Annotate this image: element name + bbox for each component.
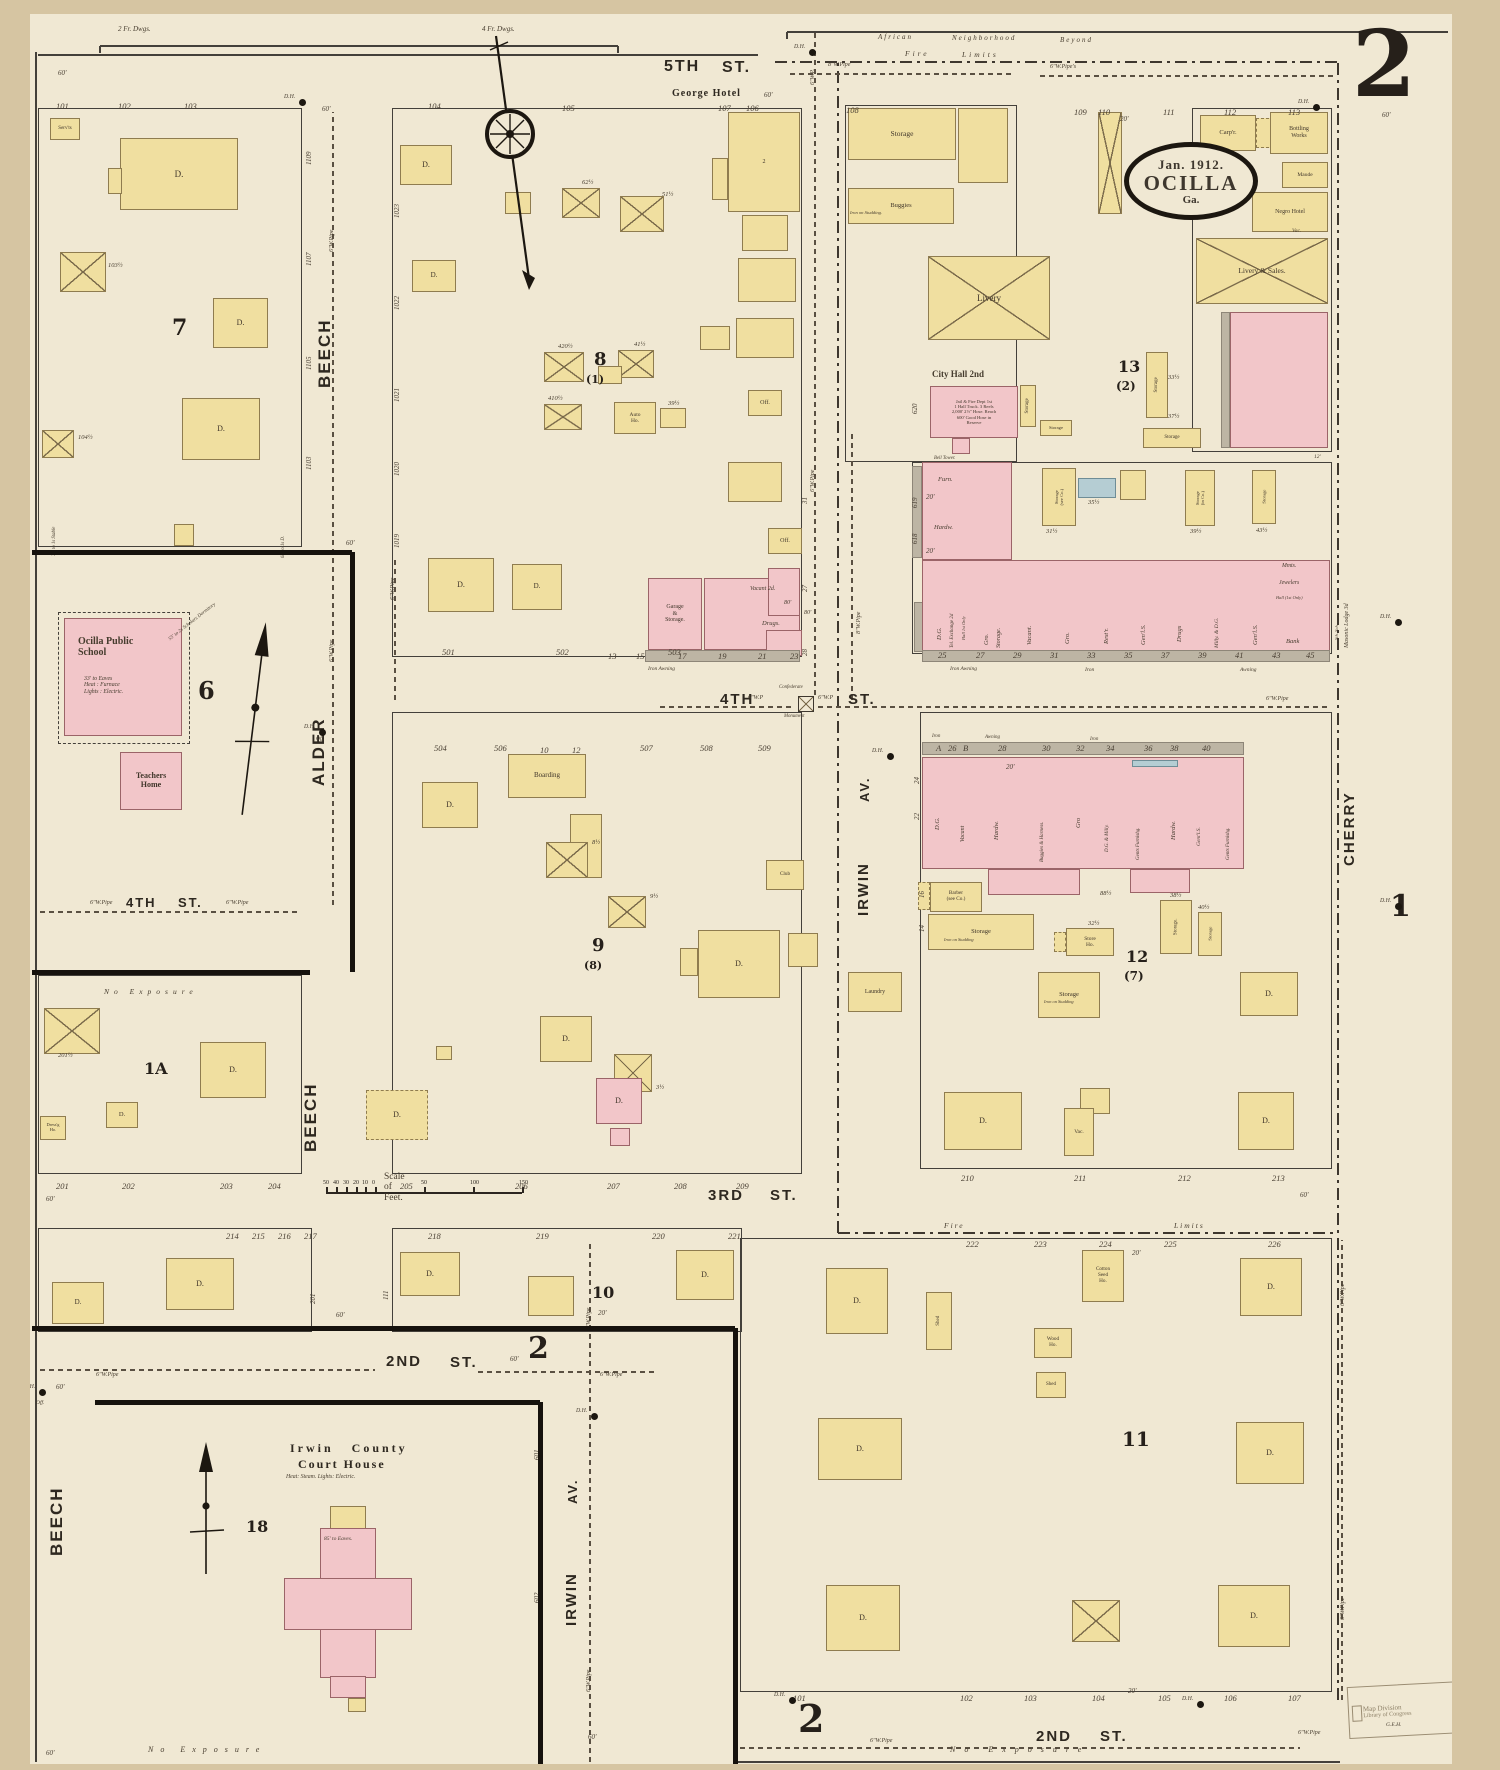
annotation: Fire	[905, 50, 930, 58]
building-label: Wood Ho.	[1047, 1337, 1059, 1349]
scale-bar-part	[365, 1187, 367, 1193]
annotation-vertical: D.G. & Milly.	[1105, 824, 1111, 852]
dimension-label: 60'	[588, 1734, 597, 1742]
lot-number: 225	[1164, 1240, 1177, 1249]
lot-number: 220	[652, 1232, 665, 1241]
lot-number: 221	[728, 1232, 741, 1241]
library-stamp: Map Division Library of Congress	[1347, 1681, 1466, 1739]
block-number: 2	[1352, 14, 1416, 115]
lot-number-vertical: 1020	[394, 462, 402, 476]
street-label: ST.	[848, 692, 876, 709]
teachers-home: Teachers Home	[120, 752, 182, 810]
building-label: Jail & Fire Dept 1st 1 Hall Truck. 3 Ree…	[952, 399, 996, 425]
building-label: D.	[853, 1297, 861, 1306]
building	[660, 408, 686, 428]
scale-tick-label: 50	[421, 1180, 427, 1186]
building	[330, 1676, 366, 1698]
lot-number: 211	[1074, 1174, 1086, 1183]
block-number: 12	[1126, 948, 1148, 966]
building	[680, 948, 698, 976]
block-number: 13	[1118, 358, 1140, 376]
lot-number: 201	[56, 1182, 69, 1191]
annotation-vertical: Drugs	[1176, 626, 1183, 642]
annotation: Off.	[36, 1400, 44, 1406]
dimension-label: 60'	[58, 70, 67, 78]
building-d: D.	[166, 1258, 234, 1310]
building-label: D.	[1250, 1612, 1258, 1621]
annotation: 6"W.Pipe's	[1050, 64, 1076, 71]
building	[544, 352, 584, 382]
lot-number: 214	[226, 1232, 239, 1241]
water-pipe-line	[1040, 75, 1335, 77]
street-label: BEECH	[48, 1486, 67, 1556]
building-auto: Auto Ho.	[614, 402, 656, 434]
street-label: CHERRY	[1342, 791, 1359, 866]
building-label: Livery & Sales.	[1238, 267, 1285, 275]
lot-number: B	[963, 744, 968, 753]
annotation: G.E.H.	[1386, 1722, 1401, 1728]
water-pipe-line	[851, 430, 853, 700]
scale-tick-label: 20	[353, 1180, 359, 1186]
annotation: 8"W.Pipe	[828, 62, 850, 69]
lot-number-vertical: 1109	[306, 152, 314, 165]
building-label: D.	[431, 272, 438, 280]
lot-number: 33	[1087, 651, 1096, 660]
dimension-label: 20'	[1120, 116, 1129, 124]
building-vac: Vac.	[1064, 1108, 1094, 1156]
lot-number: 31	[1050, 651, 1059, 660]
sheet-cut-line	[32, 970, 310, 975]
building	[1078, 478, 1116, 498]
building	[546, 842, 588, 878]
title-state: Ga.	[1183, 194, 1200, 206]
building	[1130, 869, 1190, 893]
fire-limits-line	[775, 61, 1338, 63]
annotation: 6"W.Pipe	[600, 1372, 622, 1379]
annotation-vertical: Gents Furnishg.	[1136, 828, 1142, 861]
annotation: 8½	[592, 839, 600, 846]
annotation: 420½	[558, 343, 573, 350]
lot-number: 13	[608, 652, 617, 661]
building-label: D.	[562, 1035, 570, 1044]
building-label: Serv'ts	[58, 126, 71, 132]
annotation-vertical: D.G.	[936, 627, 943, 640]
block-number: (1)	[586, 374, 604, 386]
annotation-vertical: Gen'l.S.	[1252, 624, 1259, 645]
annotation: Furn.	[938, 476, 953, 483]
annotation: Iron	[1085, 667, 1094, 673]
building	[742, 215, 788, 251]
dh-dot-icon	[887, 753, 894, 760]
dh-dot-icon	[591, 1413, 598, 1420]
building-label: D.	[1267, 1283, 1275, 1292]
annotation: 37½	[1168, 413, 1179, 420]
lot-number: 27	[976, 651, 985, 660]
building-maude: Maude	[1282, 162, 1328, 188]
annotation: Hardw.	[934, 524, 953, 531]
lot-number: 10	[540, 746, 549, 755]
building-label: Off.	[760, 400, 770, 407]
building-d: D.	[826, 1585, 900, 1651]
building-label: Vac.	[1074, 1129, 1084, 1135]
street-label: 2ND	[386, 1354, 422, 1371]
annotation: Awning	[985, 735, 1000, 741]
dh-dot-icon	[789, 1697, 796, 1704]
annotation: 39½	[668, 400, 679, 407]
building-storage: Storage	[1040, 420, 1072, 436]
building	[436, 1046, 452, 1060]
annotation: 103½	[108, 262, 123, 269]
building-shed: Shed	[926, 1292, 952, 1350]
annotation: Ocilla Public School	[78, 636, 133, 658]
dimension-label: 60'	[510, 1356, 519, 1364]
building-label: Bottling Works	[1289, 126, 1309, 139]
building-label: Dress'g Ho.	[47, 1123, 60, 1133]
annotation: 43½	[1256, 527, 1267, 534]
building	[1230, 312, 1328, 448]
lot-number: 226	[1268, 1240, 1281, 1249]
building-label: Livery	[977, 293, 1001, 303]
city-hall-jail-fire-dept: Jail & Fire Dept 1st 1 Hall Truck. 3 Ree…	[930, 386, 1018, 438]
lot-number: 25	[938, 651, 947, 660]
annotation: 104½	[78, 434, 93, 441]
street-label: George Hotel	[672, 88, 741, 99]
building	[42, 430, 74, 458]
street-label: 4TH	[126, 896, 157, 910]
lot-number: 216	[278, 1232, 291, 1241]
lot-number: 223	[1034, 1240, 1047, 1249]
building	[958, 108, 1008, 183]
building-storage: Storage	[1198, 912, 1222, 956]
building-label: D.	[457, 581, 465, 590]
annotation: 9½	[650, 893, 658, 900]
title-city: OCILLA	[1144, 173, 1239, 194]
building	[738, 258, 796, 302]
building-label: D.	[1265, 990, 1273, 999]
building	[60, 252, 106, 292]
annotation-vertical: Rest'r.	[1103, 628, 1110, 644]
dh-label: D.H.	[872, 748, 883, 754]
lot-number: 215	[252, 1232, 265, 1241]
building-label: D.	[856, 1445, 864, 1454]
annotation: 410½	[548, 395, 563, 402]
annotation: 6"W.Pipe	[1298, 1730, 1320, 1737]
sanborn-map-sheet: Jan. 1912. OCILLA Ga. Scale of Feet. 504…	[0, 0, 1500, 1770]
building-storage: Storage	[1038, 972, 1100, 1018]
annotation-vertical: Hardw.	[993, 821, 1000, 840]
annotation: 6"W.Pipe	[90, 900, 112, 907]
building-storage: Storage	[1143, 428, 1201, 448]
building-label: D.	[426, 1270, 434, 1279]
street-line	[617, 46, 618, 53]
annotation: 201½	[58, 1052, 73, 1059]
annotation: 6"W.Pipe	[96, 1372, 118, 1379]
street-label: ST.	[178, 896, 203, 910]
street-label: BEECH	[316, 318, 335, 388]
lot-number: 32	[1076, 744, 1085, 753]
annotation: Neighborhood	[952, 35, 1016, 43]
lot-number: 102	[960, 1694, 973, 1703]
north-arrow-icon	[226, 614, 291, 822]
building-boarding: Boarding	[508, 754, 586, 798]
lot-number: 35	[1124, 651, 1133, 660]
street-label: ST.	[450, 1355, 478, 1372]
sheet-cut-line	[350, 552, 355, 972]
building-livery: Livery	[928, 256, 1050, 340]
annotation: 51½	[662, 191, 673, 198]
lot-number: 37	[1161, 651, 1170, 660]
building-label: Storage (in Co.)	[1195, 491, 1205, 505]
annotation: 6"W.Pipe	[1266, 696, 1288, 703]
lot-number-vertical: 1019	[394, 534, 402, 548]
annotation: Iron	[932, 734, 940, 740]
paper-margin-right	[1452, 0, 1500, 1770]
lot-number: 213	[1272, 1174, 1285, 1183]
annotation: Iron Awning	[648, 666, 675, 672]
building-d: D.	[412, 260, 456, 292]
building-label: Storage	[1059, 991, 1079, 998]
building-label: D.	[1266, 1449, 1274, 1458]
building-bottling: Bottling Works	[1270, 112, 1328, 154]
annotation-vertical: 6"W.Pipe	[329, 640, 336, 662]
annotation: Limits	[1174, 1222, 1205, 1230]
lot-number: 17	[678, 652, 687, 661]
block-number: 2	[798, 1698, 824, 1740]
lot-number: 29	[1013, 651, 1022, 660]
building-label: D.	[393, 1111, 401, 1120]
annotation: Hall (1st Only)	[1276, 596, 1303, 601]
building	[610, 1128, 630, 1146]
lot-number: A	[936, 744, 941, 753]
annotation: Drugs.	[762, 620, 780, 627]
dimension-label: 60'	[56, 1384, 65, 1392]
building-label: Buggies	[890, 202, 911, 209]
lot-number-vertical: 618	[912, 534, 920, 545]
annotation: 41½	[634, 341, 645, 348]
annotation: 31½	[1046, 528, 1057, 535]
lot-number-vertical: 1105	[306, 357, 314, 370]
dimension-label: 20'	[1132, 1250, 1141, 1258]
building-label: Storage	[1261, 490, 1266, 504]
dimension-label: 20'	[1128, 1688, 1137, 1696]
building	[988, 869, 1080, 895]
lot-number-vertical: 27	[802, 585, 810, 592]
building-label: D.	[615, 1097, 623, 1106]
lot-number: 21	[758, 652, 767, 661]
water-pipe-line	[40, 911, 300, 913]
paper-margin-top	[0, 0, 1500, 14]
building-d: D.	[52, 1282, 104, 1324]
scale-bar-part	[473, 1187, 475, 1193]
annotation: 40½	[1198, 904, 1209, 911]
building-d: D.	[944, 1092, 1022, 1150]
building-label: Storage	[1164, 435, 1179, 441]
annotation: Bell Tower.	[934, 456, 955, 461]
building-label: Storage	[971, 928, 991, 935]
annotation: Iron on Studding	[1044, 1000, 1074, 1005]
sheet-cut-line	[538, 1402, 543, 1764]
scale-bar-part	[375, 1187, 377, 1193]
paper-margin-bottom	[0, 1764, 1500, 1770]
block-number: 7	[172, 316, 187, 340]
building-label: Storage	[1049, 425, 1063, 430]
dh-dot-icon	[319, 729, 326, 736]
building-cotton: Cotton Seed Ho.	[1082, 1250, 1124, 1302]
lot-number: 224	[1099, 1240, 1112, 1249]
lot-number-vertical: 620	[912, 404, 920, 415]
lot-number: 110	[1098, 108, 1110, 117]
lot-number: 109	[1074, 108, 1087, 117]
street-label: ST.	[770, 1188, 798, 1205]
building-label: D.	[701, 1271, 709, 1280]
lot-number: 30	[1042, 744, 1051, 753]
annotation: 6"W.P	[818, 695, 833, 702]
dimension-label: 20'	[926, 494, 935, 502]
annotation: Heat: Steam. Lights: Electric.	[286, 1474, 355, 1480]
lot-number: 206	[515, 1182, 528, 1191]
building	[174, 524, 194, 546]
building	[528, 1276, 574, 1316]
dimension-label: 60'	[1300, 1192, 1309, 1200]
water-pipe-line	[814, 30, 816, 695]
building-storage: Storage (in Co.)	[1185, 470, 1215, 526]
building-d: D.	[826, 1268, 888, 1334]
building-storage: Storage	[848, 108, 956, 160]
lot-number: 204	[268, 1182, 281, 1191]
lot-number: 111	[1163, 108, 1175, 117]
annotation-vertical: Gen'l.S.	[1140, 624, 1147, 645]
lot-number: 207	[607, 1182, 620, 1191]
lot-number: 112	[1224, 108, 1236, 117]
lot-number-vertical: 111	[383, 1291, 391, 1300]
dh-dot-icon	[1395, 619, 1402, 626]
water-pipe-line	[40, 1369, 375, 1371]
building-d: D.	[1238, 1092, 1294, 1150]
lot-number: 36	[1144, 744, 1153, 753]
building-label: Storage	[891, 130, 914, 138]
annotation-vertical: 6"W.P.	[810, 69, 817, 85]
annotation: Iron Awning	[950, 666, 977, 672]
annotation-vertical: Buggies & Harness.	[1040, 822, 1046, 862]
building	[788, 933, 818, 967]
dh-dot-icon	[1197, 1701, 1204, 1708]
building-serv-ts: Serv'ts	[50, 118, 80, 140]
lot-number: 102	[118, 102, 131, 111]
street-line	[99, 46, 100, 53]
lot-number: 45	[1306, 651, 1315, 660]
negro-hotel: Negro Hotel	[1252, 192, 1328, 232]
dh-label: D.H.	[1380, 898, 1391, 904]
annotation: Vac.	[1292, 228, 1301, 234]
building-d: D.	[512, 564, 562, 610]
building	[1054, 932, 1066, 952]
annotation-vertical: 6"W.Pipe	[1340, 1598, 1347, 1620]
dimension-label: 20'	[598, 1310, 607, 1318]
lot-number: 508	[700, 744, 713, 753]
annotation: African	[878, 34, 913, 42]
scale-tick-label: 50	[323, 1180, 329, 1186]
lot-number-vertical: 24	[914, 777, 922, 784]
building-label: Off.	[780, 538, 790, 545]
annotation: Beyond	[1060, 37, 1093, 45]
sheet-cut-line	[32, 550, 352, 555]
annotation: 39½	[1190, 528, 1201, 535]
annotation: 88½	[1100, 890, 1111, 897]
scale-bar-part	[356, 1187, 358, 1193]
building-d: D.	[1240, 972, 1298, 1016]
building-d: D.	[213, 298, 268, 348]
scale-tick-label: 100	[470, 1180, 479, 1186]
dimension-label: 60'	[1382, 112, 1391, 120]
annotation: 6"W.P	[748, 695, 763, 702]
street-label: BEECH	[302, 1082, 321, 1152]
annotation: 4 Fr. Dwgs.	[482, 26, 515, 34]
dh-label: D.H.	[774, 1692, 785, 1698]
lot-number-vertical: 1107	[306, 253, 314, 266]
lot-number: 23	[790, 652, 799, 661]
building-d: D.	[366, 1090, 428, 1140]
annotation-vertical: 68' to 1s D.	[281, 536, 286, 558]
annotation-vertical: Hardw.	[1170, 821, 1177, 840]
annotation: 62½	[582, 179, 593, 186]
street-label: 5TH	[664, 58, 700, 76]
block-number: (8)	[584, 960, 602, 972]
annotation: City Hall 2nd	[932, 370, 984, 380]
block-number: 1A	[144, 1060, 168, 1078]
building	[562, 188, 600, 218]
street-label: IRWIN	[564, 1572, 581, 1626]
dh-dot-icon	[299, 99, 306, 106]
lot-number: 107	[718, 104, 731, 113]
building-d: D.	[698, 930, 780, 998]
lot-number-vertical: 31	[802, 497, 810, 504]
annotation: Off.	[316, 736, 324, 742]
building-off: Off.	[748, 390, 782, 416]
dimension-label: 60'	[322, 106, 331, 114]
lot-number-vertical: 619	[912, 498, 920, 509]
lot-number: 218	[428, 1232, 441, 1241]
annotation-vertical: Gro.	[1064, 632, 1071, 644]
lot-number: 105	[1158, 1694, 1171, 1703]
block-number: 8	[594, 350, 607, 370]
lot-number: 217	[304, 1232, 317, 1241]
building-d: D.	[818, 1418, 902, 1480]
building-club: Club	[766, 860, 804, 890]
building	[1120, 470, 1146, 500]
building	[700, 326, 730, 350]
dimension-label: 60'	[46, 1750, 55, 1758]
annotation: 2 Fr. Dwgs.	[118, 26, 151, 34]
lot-number: 103	[1024, 1694, 1037, 1703]
annotation-vertical: D.G.	[934, 817, 941, 830]
lot-number: 108	[846, 106, 859, 115]
lot-number: 501	[442, 648, 455, 657]
building-off: Off.	[768, 528, 802, 554]
annotation-vertical: Gents Furnishg.	[1226, 828, 1232, 861]
lot-number: 509	[758, 744, 771, 753]
scale-bar-part	[424, 1187, 426, 1193]
building-d: D.	[422, 782, 478, 828]
water-pipe-line	[790, 73, 1015, 75]
annotation: 38½	[1170, 892, 1181, 899]
street-label: IRWIN	[856, 862, 873, 916]
building-store: Store Ho.	[1066, 928, 1114, 956]
dimension-label: 60'	[46, 1196, 55, 1204]
building-storage: Storage	[1252, 470, 1276, 524]
annotation: Bank	[1286, 638, 1299, 645]
block-number: 18	[246, 1518, 268, 1536]
lot-number: 101	[56, 102, 69, 111]
